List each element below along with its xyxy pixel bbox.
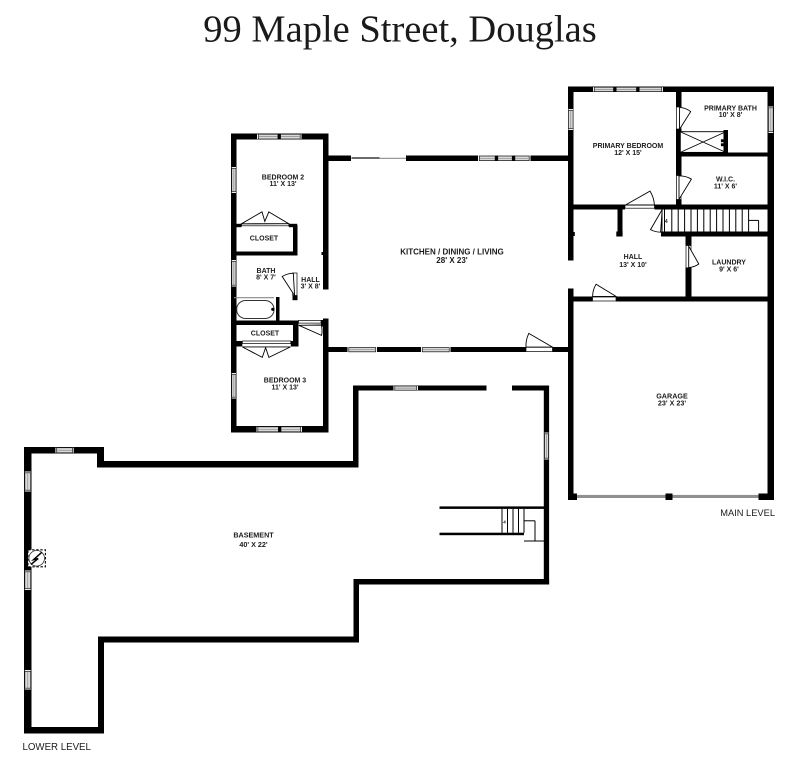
svg-text:HALL: HALL [624, 254, 643, 261]
svg-text:BEDROOM 3: BEDROOM 3 [264, 378, 307, 385]
svg-text:13' X 10': 13' X 10' [619, 262, 647, 269]
svg-text:11' X 13': 11' X 13' [269, 181, 296, 188]
svg-text:99 Maple Street, Douglas: 99 Maple Street, Douglas [203, 9, 596, 51]
svg-text:4: 4 [665, 219, 668, 225]
svg-text:11' X 13': 11' X 13' [271, 385, 298, 392]
svg-text:11' X 6': 11' X 6' [714, 184, 738, 191]
svg-text:12' X 15': 12' X 15' [614, 150, 642, 157]
svg-text:CLOSET: CLOSET [251, 331, 280, 338]
svg-text:LOWER LEVEL: LOWER LEVEL [23, 742, 92, 753]
svg-text:CLOSET: CLOSET [250, 236, 279, 243]
svg-text:28' X 23': 28' X 23' [436, 256, 467, 265]
svg-text:23' X 23': 23' X 23' [658, 399, 686, 408]
svg-text:LAUNDRY: LAUNDRY [712, 259, 746, 266]
svg-text:BASEMENT: BASEMENT [233, 531, 274, 540]
svg-text:40' X 22': 40' X 22' [239, 540, 267, 549]
svg-text:9' X 6': 9' X 6' [719, 267, 739, 274]
svg-text:10' X 8': 10' X 8' [719, 112, 743, 119]
svg-text:MAIN LEVEL: MAIN LEVEL [720, 508, 775, 518]
svg-text:4: 4 [503, 520, 506, 525]
svg-text:W.I.C.: W.I.C. [716, 177, 735, 184]
svg-text:3' X 8': 3' X 8' [301, 284, 321, 291]
svg-text:8' X 7': 8' X 7' [256, 274, 276, 281]
